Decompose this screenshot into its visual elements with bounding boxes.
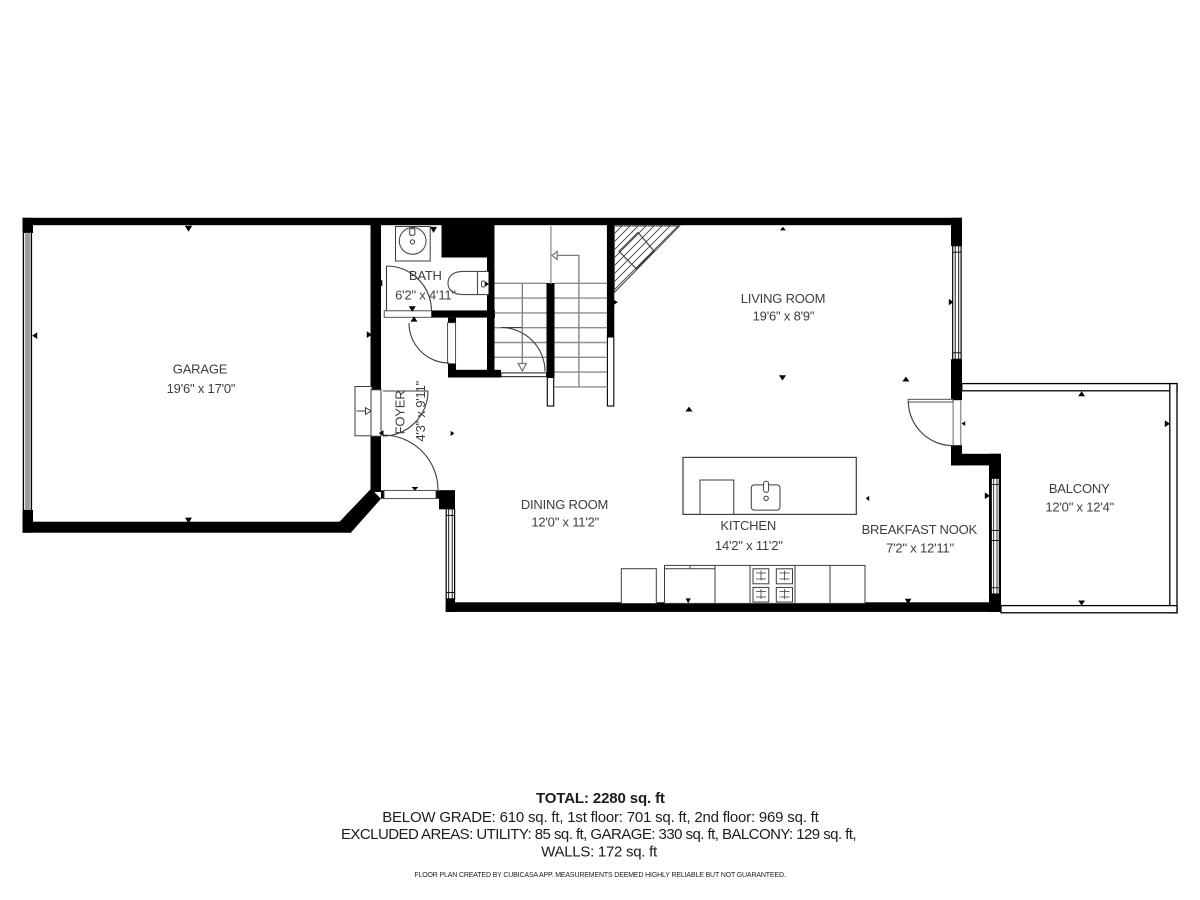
svg-text:GARAGE: GARAGE [173, 362, 228, 377]
svg-text:19'6" x 8'9": 19'6" x 8'9" [753, 309, 815, 324]
svg-text:14'2" x 11'2": 14'2" x 11'2" [715, 538, 783, 553]
svg-text:EXCLUDED AREAS: UTILITY: 85 sq: EXCLUDED AREAS: UTILITY: 85 sq. ft, GARA… [341, 826, 856, 843]
svg-text:BREAKFAST NOOK: BREAKFAST NOOK [862, 522, 978, 537]
svg-text:4'3" x 9'11": 4'3" x 9'11" [413, 380, 428, 441]
svg-text:19'6" x 17'0": 19'6" x 17'0" [167, 381, 236, 396]
svg-text:FLOOR PLAN CREATED BY CUBICASA: FLOOR PLAN CREATED BY CUBICASA APP. MEAS… [414, 872, 786, 879]
svg-text:FOYER: FOYER [393, 391, 408, 435]
svg-text:BELOW GRADE: 610 sq. ft, 1st f: BELOW GRADE: 610 sq. ft, 1st floor: 701 … [382, 809, 819, 826]
svg-text:12'0" x 11'2": 12'0" x 11'2" [531, 515, 599, 530]
svg-text:6'2" x 4'11": 6'2" x 4'11" [395, 287, 456, 302]
svg-text:BATH: BATH [409, 268, 442, 283]
svg-text:TOTAL: 2280 sq. ft: TOTAL: 2280 sq. ft [536, 790, 665, 807]
svg-text:WALLS: 172 sq. ft: WALLS: 172 sq. ft [541, 843, 658, 860]
svg-text:LIVING ROOM: LIVING ROOM [741, 291, 825, 306]
svg-text:12'0" x 12'4": 12'0" x 12'4" [1045, 500, 1114, 515]
svg-text:DINING ROOM: DINING ROOM [521, 497, 608, 512]
svg-text:7'2" x 12'11": 7'2" x 12'11" [886, 541, 954, 556]
svg-text:BALCONY: BALCONY [1049, 481, 1110, 496]
svg-text:KITCHEN: KITCHEN [720, 518, 776, 533]
